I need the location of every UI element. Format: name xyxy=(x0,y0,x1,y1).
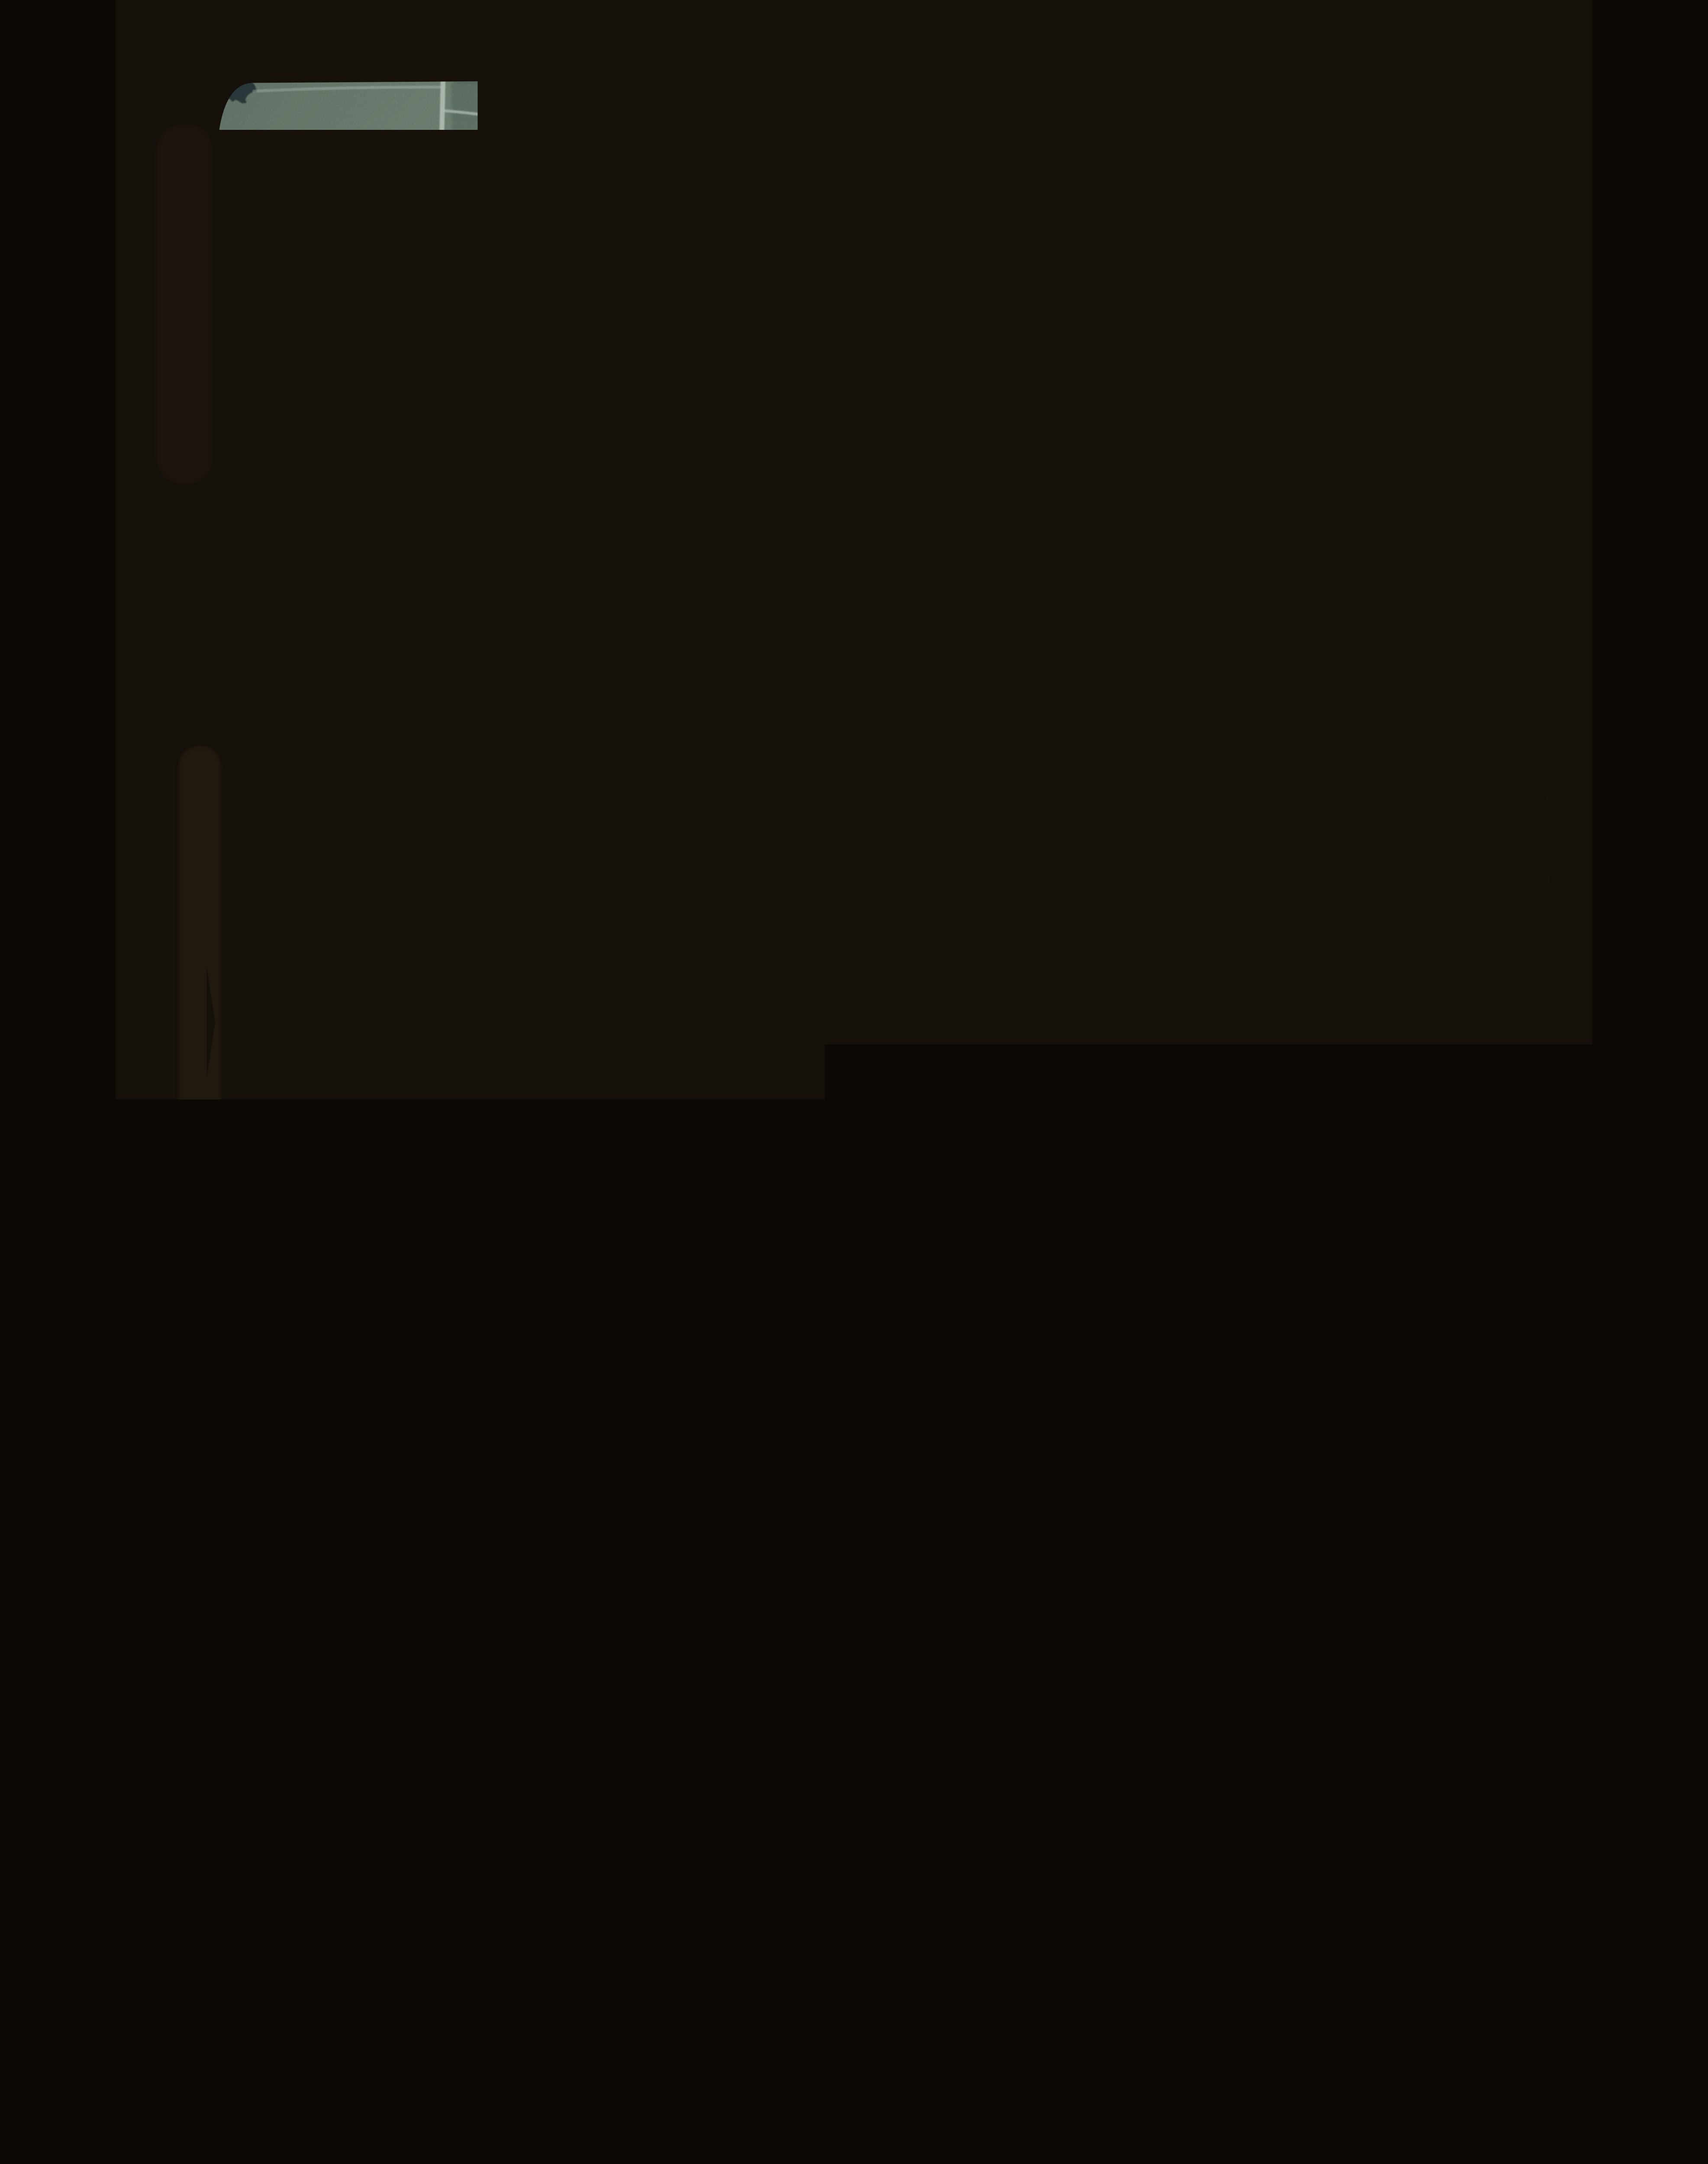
corner-glow xyxy=(157,124,213,483)
film-grain xyxy=(191,62,1573,2121)
slide-scan xyxy=(116,0,1592,2164)
aerial-photograph xyxy=(191,62,1573,2121)
aerial-photo-svg xyxy=(116,0,1592,2164)
